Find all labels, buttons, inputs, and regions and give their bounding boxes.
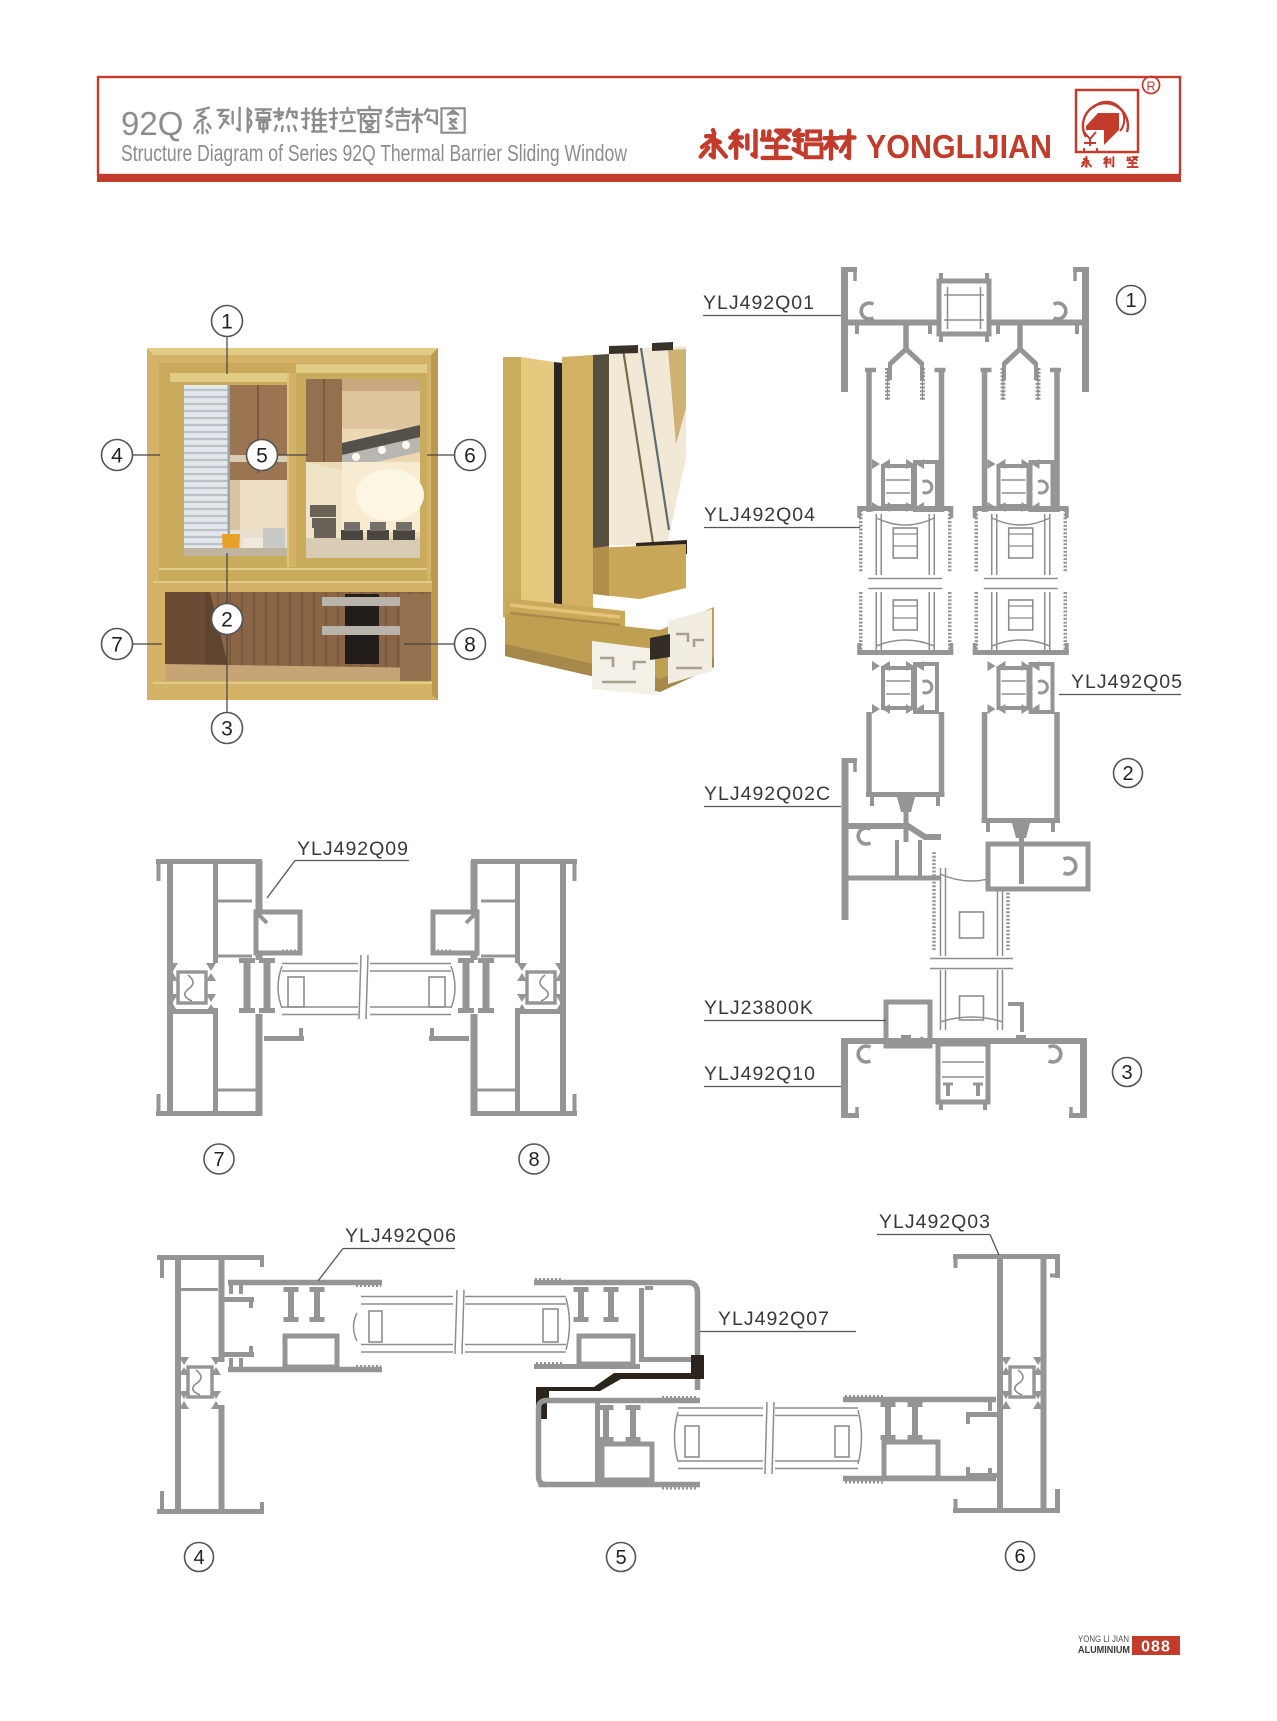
svg-text:5: 5 [615, 1547, 626, 1569]
svg-text:YONGLIJIAN: YONGLIJIAN [866, 128, 1052, 165]
svg-text:4: 4 [193, 1547, 204, 1569]
svg-text:ALUMINIUM: ALUMINIUM [1078, 1644, 1130, 1656]
svg-text:Structure Diagram of Series 92: Structure Diagram of Series 92Q Thermal … [121, 140, 627, 166]
svg-text:1: 1 [1125, 290, 1136, 312]
svg-text:8: 8 [528, 1149, 539, 1171]
svg-text:YLJ492Q04: YLJ492Q04 [704, 504, 816, 526]
svg-text:088: 088 [1141, 1639, 1171, 1656]
svg-text:YLJ492Q09: YLJ492Q09 [297, 838, 409, 860]
svg-text:3: 3 [1121, 1062, 1132, 1084]
svg-text:1: 1 [221, 310, 233, 333]
svg-text:2: 2 [1122, 763, 1133, 785]
svg-text:YLJ492Q06: YLJ492Q06 [345, 1225, 457, 1247]
svg-text:8: 8 [464, 633, 476, 656]
svg-text:YLJ492Q01: YLJ492Q01 [703, 292, 815, 314]
svg-text:7: 7 [213, 1149, 224, 1171]
svg-text:4: 4 [111, 444, 123, 467]
svg-text:YLJ492Q07: YLJ492Q07 [718, 1308, 830, 1330]
svg-text:YLJ492Q10: YLJ492Q10 [704, 1063, 816, 1085]
svg-text:5: 5 [256, 444, 268, 467]
svg-text:YLJ492Q02C: YLJ492Q02C [704, 783, 831, 805]
svg-text:3: 3 [221, 717, 233, 740]
svg-text:6: 6 [1014, 1546, 1025, 1568]
svg-text:R: R [1146, 80, 1155, 94]
svg-text:YLJ23800K: YLJ23800K [704, 997, 814, 1019]
svg-text:92Q: 92Q [121, 105, 183, 142]
svg-text:2: 2 [221, 608, 233, 631]
svg-text:6: 6 [464, 444, 476, 467]
svg-text:YLJ492Q03: YLJ492Q03 [879, 1211, 991, 1233]
svg-text:YLJ492Q05: YLJ492Q05 [1071, 671, 1183, 693]
svg-text:7: 7 [111, 633, 123, 656]
